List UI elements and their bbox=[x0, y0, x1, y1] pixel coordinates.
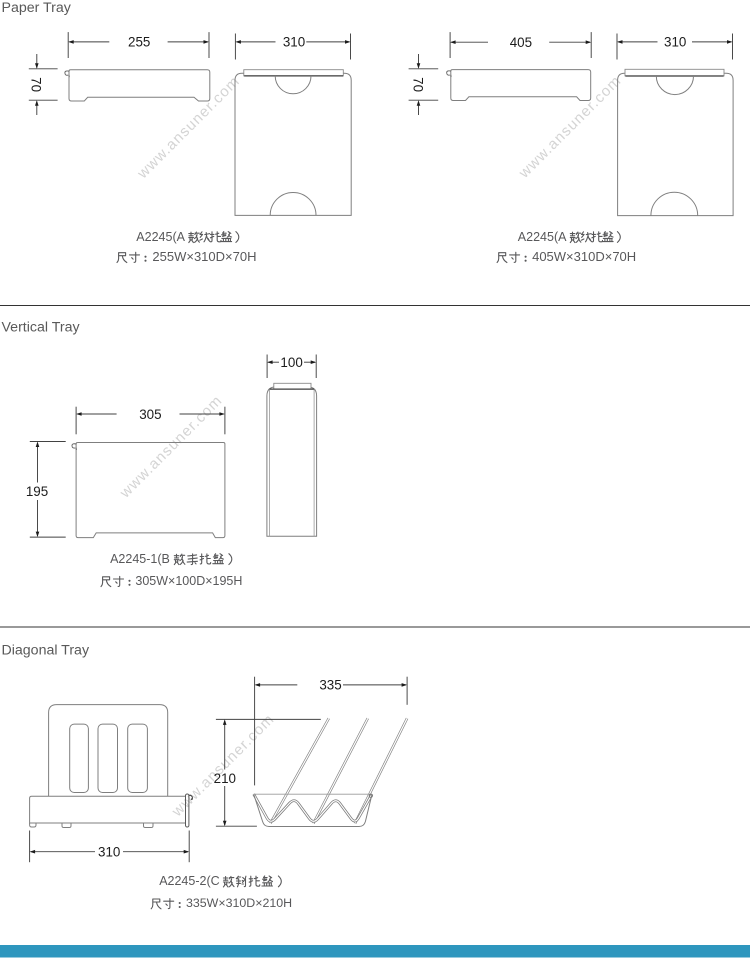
svg-text:310: 310 bbox=[98, 844, 120, 859]
svg-text:A2245-1(B: A2245-1(B bbox=[110, 552, 170, 566]
svg-text:Diagonal Tray: Diagonal Tray bbox=[2, 643, 90, 659]
svg-text:70: 70 bbox=[410, 77, 425, 92]
svg-text:www.ansuner.com: www.ansuner.com bbox=[116, 392, 226, 502]
svg-text:335: 335 bbox=[319, 678, 341, 693]
svg-text:210: 210 bbox=[214, 771, 236, 786]
svg-text:255W×310D×70H: 255W×310D×70H bbox=[152, 249, 256, 264]
svg-text:A2245-2(C: A2245-2(C bbox=[159, 874, 219, 888]
svg-text:305: 305 bbox=[139, 407, 161, 422]
svg-text:335W×310D×210H: 335W×310D×210H bbox=[186, 896, 292, 910]
svg-text:70: 70 bbox=[29, 77, 44, 92]
svg-text:255: 255 bbox=[128, 35, 150, 50]
svg-text:www.ansuner.com: www.ansuner.com bbox=[515, 72, 625, 182]
svg-text:310: 310 bbox=[283, 35, 305, 50]
svg-text:195: 195 bbox=[26, 484, 48, 499]
svg-text:A2245(A: A2245(A bbox=[518, 230, 567, 244]
svg-text:405W×310D×70H: 405W×310D×70H bbox=[532, 249, 636, 264]
svg-text:www.ansuner.com: www.ansuner.com bbox=[134, 73, 244, 183]
svg-text:405: 405 bbox=[510, 35, 532, 50]
svg-text:305W×100D×195H: 305W×100D×195H bbox=[135, 574, 242, 588]
svg-text:Paper Tray: Paper Tray bbox=[2, 0, 72, 16]
svg-text:A2245(A: A2245(A bbox=[136, 230, 185, 244]
svg-text:www.ansuner.com: www.ansuner.com bbox=[168, 711, 278, 821]
svg-text:310: 310 bbox=[664, 35, 686, 50]
svg-text:100: 100 bbox=[280, 355, 302, 370]
svg-text:Vertical Tray: Vertical Tray bbox=[2, 319, 81, 335]
